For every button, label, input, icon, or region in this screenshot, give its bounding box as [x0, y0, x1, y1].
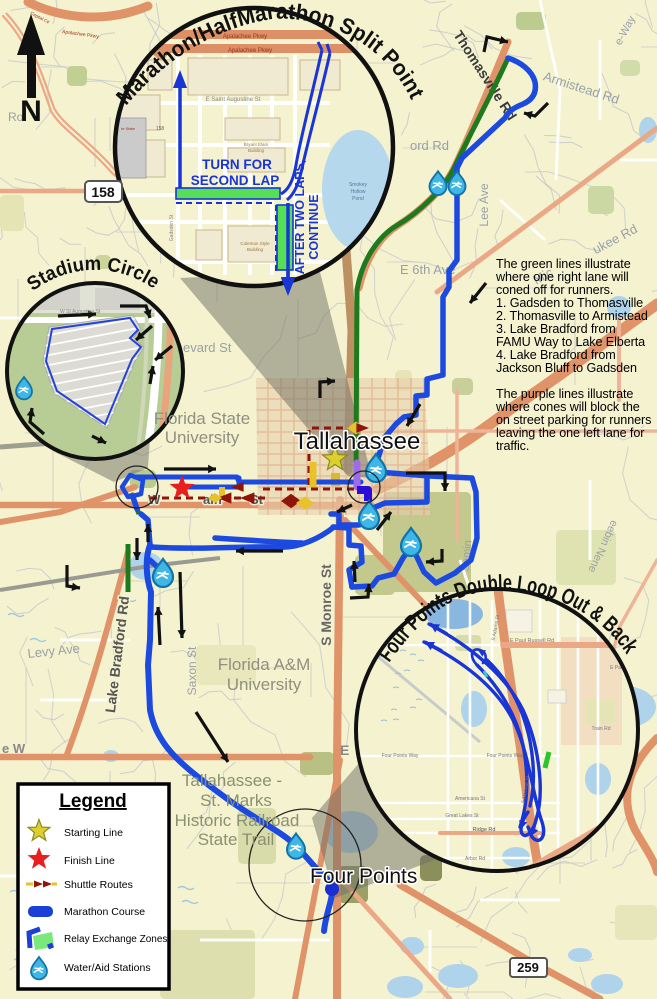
svg-text:traffic.: traffic.	[496, 439, 529, 453]
svg-text:The purple lines illustrate: The purple lines illustrate	[496, 387, 633, 401]
svg-text:Ridge Rd: Ridge Rd	[473, 827, 496, 833]
svg-text:SECOND LAP: SECOND LAP	[191, 173, 280, 188]
svg-text:evard St: evard St	[183, 340, 232, 355]
svg-text:University: University	[165, 428, 240, 447]
svg-text:Coleman Style: Coleman Style	[240, 241, 270, 246]
svg-text:158: 158	[91, 184, 115, 200]
svg-text:coned off for runners.: coned off for runners.	[496, 283, 613, 297]
svg-text:State Trail: State Trail	[198, 830, 275, 849]
svg-text:Bryant Elam: Bryant Elam	[244, 142, 269, 147]
svg-text:TURN FOR: TURN FOR	[202, 157, 272, 172]
svg-text:ord Rd: ord Rd	[410, 138, 449, 153]
svg-text:Americana St: Americana St	[455, 796, 486, 802]
svg-text:Shuttle Routes: Shuttle Routes	[64, 879, 133, 891]
svg-text:where cones will block the: where cones will block the	[495, 400, 640, 414]
svg-text:Building: Building	[247, 247, 264, 252]
svg-text:Florida A&M: Florida A&M	[218, 655, 311, 674]
svg-text:Legend: Legend	[59, 791, 127, 812]
svg-text:Starting Line: Starting Line	[64, 827, 123, 839]
svg-text:259: 259	[517, 960, 539, 975]
svg-text:CONTINUE: CONTINUE	[307, 194, 321, 259]
svg-text:St. Marks: St. Marks	[200, 791, 272, 810]
svg-text:FAMU Way to Lake Elberta: FAMU Way to Lake Elberta	[496, 335, 645, 349]
svg-text:on street parking for runners: on street parking for runners	[496, 413, 651, 427]
svg-text:Tallahassee -: Tallahassee -	[182, 771, 282, 790]
svg-text:Marathon Course: Marathon Course	[64, 906, 145, 918]
svg-text:Water/Aid Stations: Water/Aid Stations	[64, 962, 151, 974]
svg-text:e W: e W	[2, 741, 26, 756]
svg-text:Pond: Pond	[352, 196, 364, 202]
svg-text:where one right lane will: where one right lane will	[495, 270, 629, 284]
svg-text:Saxon St: Saxon St	[185, 646, 199, 695]
svg-text:te State: te State	[121, 126, 136, 131]
svg-text:E Paul Russell Rd: E Paul Russell Rd	[510, 638, 554, 644]
svg-text:Florida State: Florida State	[154, 409, 250, 428]
svg-text:Gadsden St: Gadsden St	[169, 214, 175, 241]
svg-text:1. Gadsden to Thomasville: 1. Gadsden to Thomasville	[496, 296, 643, 310]
svg-text:Jackson Bluff to Gadsden: Jackson Bluff to Gadsden	[496, 361, 637, 375]
svg-text:Relay Exchange Zones: Relay Exchange Zones	[64, 934, 167, 945]
svg-text:Four Points Way: Four Points Way	[487, 753, 524, 759]
svg-text:The green lines illustrate: The green lines illustrate	[496, 257, 631, 271]
svg-text:3. Lake Bradford from: 3. Lake Bradford from	[496, 322, 616, 336]
svg-text:4. Lake Bradford from: 4. Lake Bradford from	[496, 348, 616, 362]
svg-text:Historic Railroad: Historic Railroad	[175, 811, 300, 830]
svg-text:Lee Ave: Lee Ave	[477, 183, 491, 226]
svg-text:Great Lakes St: Great Lakes St	[445, 813, 479, 819]
svg-text:Smokey: Smokey	[349, 182, 368, 188]
svg-text:2. Thomasville to Armistead: 2. Thomasville to Armistead	[496, 309, 648, 323]
svg-text:S Monroe St: S Monroe St	[318, 564, 334, 646]
svg-text:leaving the one left lane for: leaving the one left lane for	[496, 426, 644, 440]
svg-text:University: University	[227, 675, 302, 694]
svg-text:Building: Building	[248, 148, 265, 153]
svg-text:Train Rd: Train Rd	[592, 726, 611, 732]
svg-text:158: 158	[156, 126, 165, 132]
svg-text:W St Augustine St: W St Augustine St	[60, 309, 101, 315]
svg-text:Finish Line: Finish Line	[64, 855, 115, 867]
svg-text:Four Points Way: Four Points Way	[382, 753, 419, 759]
svg-text:Four Points: Four Points	[310, 865, 417, 888]
svg-text:Hollow: Hollow	[350, 189, 365, 195]
svg-text:N: N	[20, 95, 42, 128]
svg-text:E Saint Augustine St: E Saint Augustine St	[206, 97, 261, 103]
svg-text:Apalachee Pkwy: Apalachee Pkwy	[228, 48, 272, 54]
svg-text:Tallahassee: Tallahassee	[294, 428, 421, 455]
svg-text:E: E	[340, 742, 349, 758]
svg-text:AFTER TWO LAPS,: AFTER TWO LAPS,	[293, 160, 307, 275]
svg-text:Arbor Rd: Arbor Rd	[465, 856, 485, 862]
